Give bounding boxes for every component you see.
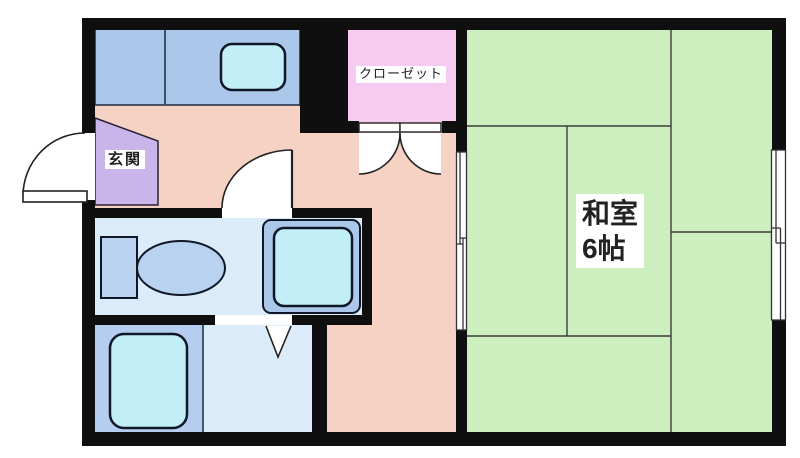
sliding-door-frame	[457, 152, 467, 330]
wall-closet-stub-left	[348, 121, 359, 133]
japanese-room-label-line2: 6帖	[582, 233, 626, 264]
entrance-label: 玄関	[105, 150, 145, 169]
window-frame	[772, 150, 786, 320]
closet-door-left-leaf	[359, 123, 400, 132]
entrance-door-leaf	[23, 191, 87, 202]
closet-door-right-leaf	[400, 123, 441, 132]
outer-wall-left-lower	[82, 200, 95, 432]
bath-door-opening	[215, 315, 292, 325]
wall-toilet-bottom-left	[95, 315, 215, 325]
wall-hall-tatami-lower	[456, 330, 467, 432]
toilet-tank	[101, 237, 137, 298]
wall-hall-tatami-upper	[456, 25, 467, 152]
bathtub	[110, 334, 187, 428]
tatami-window	[772, 150, 786, 320]
wall-toilet-top-left	[95, 208, 222, 218]
kitchen-sink	[221, 44, 285, 90]
outer-wall-bottom	[82, 432, 786, 446]
wall-toilet-right	[362, 208, 372, 325]
outer-wall-right-lower	[772, 320, 786, 432]
floor-plan: クローゼット 玄関 和室 6帖	[0, 0, 800, 458]
japanese-room-label: 和室 6帖	[576, 194, 644, 268]
outer-wall-top	[82, 18, 786, 30]
wall-toilet-bottom-right	[292, 315, 372, 325]
toilet-door-opening	[222, 208, 292, 218]
washroom-floor	[203, 325, 312, 432]
outer-wall-right-upper	[772, 18, 786, 150]
wall-bathroom-right	[312, 325, 327, 432]
entrance-door-swing-area	[23, 133, 85, 196]
wall-kitchen-closet	[300, 25, 348, 133]
toilet-bowl	[137, 241, 225, 295]
entrance-door	[23, 133, 87, 202]
hall-tatami-sliding-door	[457, 152, 467, 330]
japanese-room-label-line1: 和室	[582, 198, 638, 229]
washing-machine	[274, 228, 352, 306]
outer-wall-left-upper	[82, 18, 95, 133]
wall-toilet-top-right	[292, 208, 372, 218]
closet-label: クローゼット	[356, 66, 446, 83]
